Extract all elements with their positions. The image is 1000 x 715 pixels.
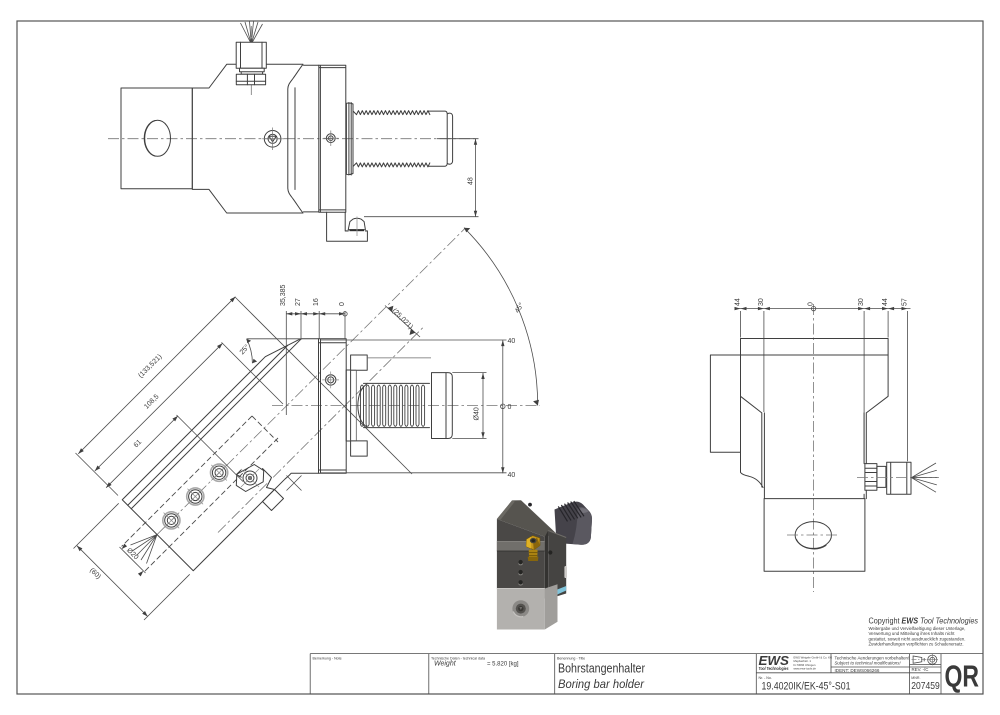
svg-text:Technische Aenderungen vorbeha: Technische Aenderungen vorbehalten! [835, 655, 910, 660]
svg-text:Subject to technical modificat: Subject to technical modifications! [835, 661, 902, 666]
svg-text:Weight: Weight [434, 661, 457, 668]
svg-text:44: 44 [882, 298, 889, 306]
svg-text:= 5.820 [kg]: = 5.820 [kg] [487, 662, 519, 668]
svg-text:Benennung - Title: Benennung - Title [557, 657, 585, 661]
svg-text:Tool Technologies: Tool Technologies [759, 666, 790, 671]
svg-text:16: 16 [313, 298, 320, 306]
svg-text:Zuwiderhandlungen verpflichten: Zuwiderhandlungen verpflichten zu Schade… [869, 642, 964, 647]
svg-text:30: 30 [758, 298, 765, 306]
svg-text:IDENT: DEWS066266: IDENT: DEWS066266 [835, 668, 880, 673]
svg-text:Bemerkung - Note: Bemerkung - Note [313, 657, 342, 661]
svg-text:40: 40 [508, 338, 516, 345]
svg-text:Nr. - No.: Nr. - No. [759, 676, 772, 680]
svg-text:0: 0 [808, 302, 815, 306]
svg-text:0: 0 [508, 404, 512, 411]
svg-text:0: 0 [339, 302, 346, 306]
svg-text:48: 48 [468, 177, 475, 185]
svg-text:30: 30 [858, 298, 865, 306]
svg-text:www.ews-tools.de: www.ews-tools.de [794, 666, 817, 670]
svg-text:44: 44 [734, 298, 741, 306]
svg-text:207459: 207459 [911, 680, 940, 692]
svg-text:REV. -/C: REV. -/C [912, 667, 929, 672]
svg-text:27: 27 [295, 298, 302, 306]
svg-text:Bohrstangenhalter: Bohrstangenhalter [558, 662, 645, 676]
svg-text:QR: QR [945, 659, 980, 694]
svg-text:57: 57 [901, 298, 908, 306]
svg-text:35,385: 35,385 [280, 284, 287, 306]
svg-text:40: 40 [508, 472, 516, 479]
svg-text:Ø40: Ø40 [474, 407, 481, 420]
svg-text:Copyright EWS Tool Technologie: Copyright EWS Tool Technologies [869, 617, 979, 626]
svg-text:Boring bar holder: Boring bar holder [558, 677, 645, 691]
svg-text:19.4020IK/EK-45°-S01: 19.4020IK/EK-45°-S01 [762, 680, 851, 692]
